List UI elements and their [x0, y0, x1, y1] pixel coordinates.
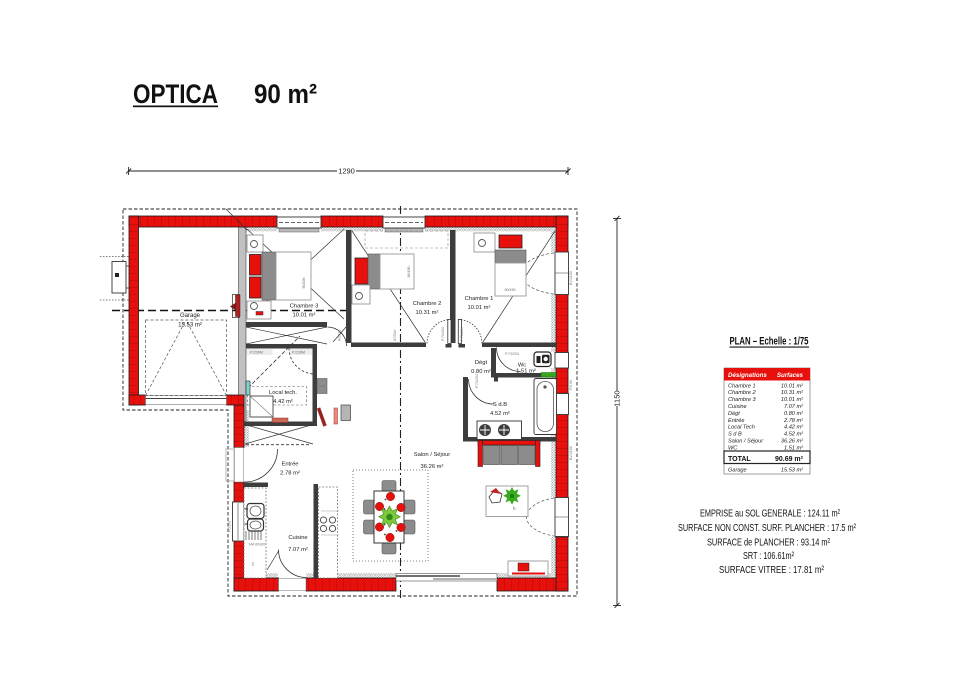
svg-text:Désignations: Désignations: [728, 372, 767, 379]
svg-text:P.73/204: P.73/204: [505, 352, 519, 356]
svg-text:Entrée: Entrée: [728, 418, 744, 424]
svg-text:Garage: Garage: [728, 468, 747, 474]
svg-text:SURFACE VITREE : 17.81 m²: SURFACE VITREE : 17.81 m²: [719, 565, 825, 576]
svg-text:BV/2150: BV/2150: [569, 446, 573, 460]
svg-text:Chambre 2: Chambre 2: [728, 390, 757, 396]
svg-text:7.07 m²: 7.07 m²: [288, 547, 308, 553]
svg-text:A/052e: A/052e: [338, 330, 342, 341]
svg-text:Chambre 2: Chambre 2: [413, 301, 442, 307]
svg-text:1.51 m²: 1.51 m²: [516, 369, 536, 375]
svg-text:Chambre 1: Chambre 1: [728, 383, 756, 389]
svg-text:4.42 m²: 4.42 m²: [273, 399, 293, 405]
svg-text:Salon / Séjour: Salon / Séjour: [728, 439, 764, 445]
svg-text:36.26 m²: 36.26 m²: [421, 464, 444, 470]
svg-text:PLAN – Echelle : 1/75: PLAN – Echelle : 1/75: [730, 336, 809, 348]
svg-text:10.31 m²: 10.31 m²: [781, 390, 804, 396]
svg-text:F/0.60: F/0.60: [569, 380, 573, 390]
svg-text:2.78 m²: 2.78 m²: [783, 418, 804, 424]
svg-text:90/190: 90/190: [407, 267, 411, 278]
svg-text:4.42 m²: 4.42 m²: [784, 425, 804, 431]
svg-text:Dégt: Dégt: [728, 411, 740, 417]
svg-text:4.52 m²: 4.52 m²: [784, 432, 804, 438]
svg-text:10.31 m²: 10.31 m²: [416, 310, 439, 316]
svg-text:10.01 m²: 10.01 m²: [781, 383, 804, 389]
svg-text:1290: 1290: [338, 167, 355, 176]
svg-text:BV/2150: BV/2150: [569, 271, 573, 285]
svg-text:15.53 m²: 15.53 m²: [781, 468, 804, 474]
svg-text:7.07 m²: 7.07 m²: [784, 404, 804, 410]
svg-text:Local tech.: Local tech.: [269, 390, 297, 396]
svg-text:F/2150: F/2150: [228, 521, 232, 532]
svg-text:4.52 m²: 4.52 m²: [490, 411, 510, 417]
svg-text:S d.B: S d.B: [493, 402, 507, 408]
svg-text:SRT : 106.61m²: SRT : 106.61m²: [743, 551, 794, 562]
svg-text:P./230M: P./230M: [250, 351, 263, 355]
svg-text:Entrée: Entrée: [281, 462, 298, 468]
svg-text:P.73/204: P.73/204: [475, 374, 479, 388]
svg-text:Dégt: Dégt: [475, 360, 488, 366]
svg-text:10.01 m²: 10.01 m²: [468, 305, 491, 311]
svg-text:Surfaces: Surfaces: [777, 372, 804, 379]
svg-text:Local Tech: Local Tech: [728, 425, 755, 431]
svg-text:Salon / Séjour: Salon / Séjour: [414, 452, 450, 458]
svg-text:1150: 1150: [613, 390, 622, 406]
svg-text:15.53 m²: 15.53 m²: [178, 323, 202, 329]
svg-text:Garage: Garage: [180, 313, 201, 319]
svg-text:Chambre 3: Chambre 3: [728, 397, 757, 403]
svg-text:P./230M: P./230M: [292, 351, 305, 355]
svg-text:Cuisine: Cuisine: [728, 404, 747, 410]
svg-text:A7/52e: A7/52e: [393, 330, 397, 341]
svg-text:90/190: 90/190: [302, 278, 306, 289]
svg-text:0.80 m²: 0.80 m²: [784, 411, 804, 417]
svg-text:OPTICA: OPTICA: [133, 79, 218, 109]
svg-text:Cuisine: Cuisine: [288, 535, 307, 541]
svg-text:P.73/204: P.73/204: [460, 327, 464, 341]
svg-text:SURFACE de PLANCHER : 93.14 m: SURFACE de PLANCHER : 93.14 m²: [707, 537, 830, 548]
svg-text:S d B: S d B: [728, 432, 742, 438]
svg-text:36.26 m²: 36.26 m²: [781, 439, 804, 445]
svg-text:Chambre 3: Chambre 3: [290, 304, 319, 310]
svg-text:TOTAL: TOTAL: [728, 456, 751, 463]
svg-text:EMPRISE au SOL GENERALE : 124.: EMPRISE au SOL GENERALE : 124.11 m²: [700, 509, 840, 520]
svg-text:ch: ch: [251, 562, 255, 566]
svg-text:SURFACE NON CONST. SURF. PLANC: SURFACE NON CONST. SURF. PLANCHER : 17.5…: [678, 523, 856, 534]
svg-text:90/190: 90/190: [505, 288, 516, 292]
svg-text:90 m²: 90 m²: [254, 79, 317, 109]
svg-text:MA 60x60: MA 60x60: [249, 543, 265, 547]
svg-text:2.78 m²: 2.78 m²: [280, 471, 300, 477]
svg-text:10.01 m²: 10.01 m²: [293, 313, 316, 319]
svg-text:Chambre 1: Chambre 1: [465, 296, 494, 302]
svg-text:90.69 m²: 90.69 m²: [775, 456, 804, 463]
svg-text:P.73/204: P.73/204: [441, 327, 445, 341]
svg-text:10.01 m²: 10.01 m²: [781, 397, 804, 403]
